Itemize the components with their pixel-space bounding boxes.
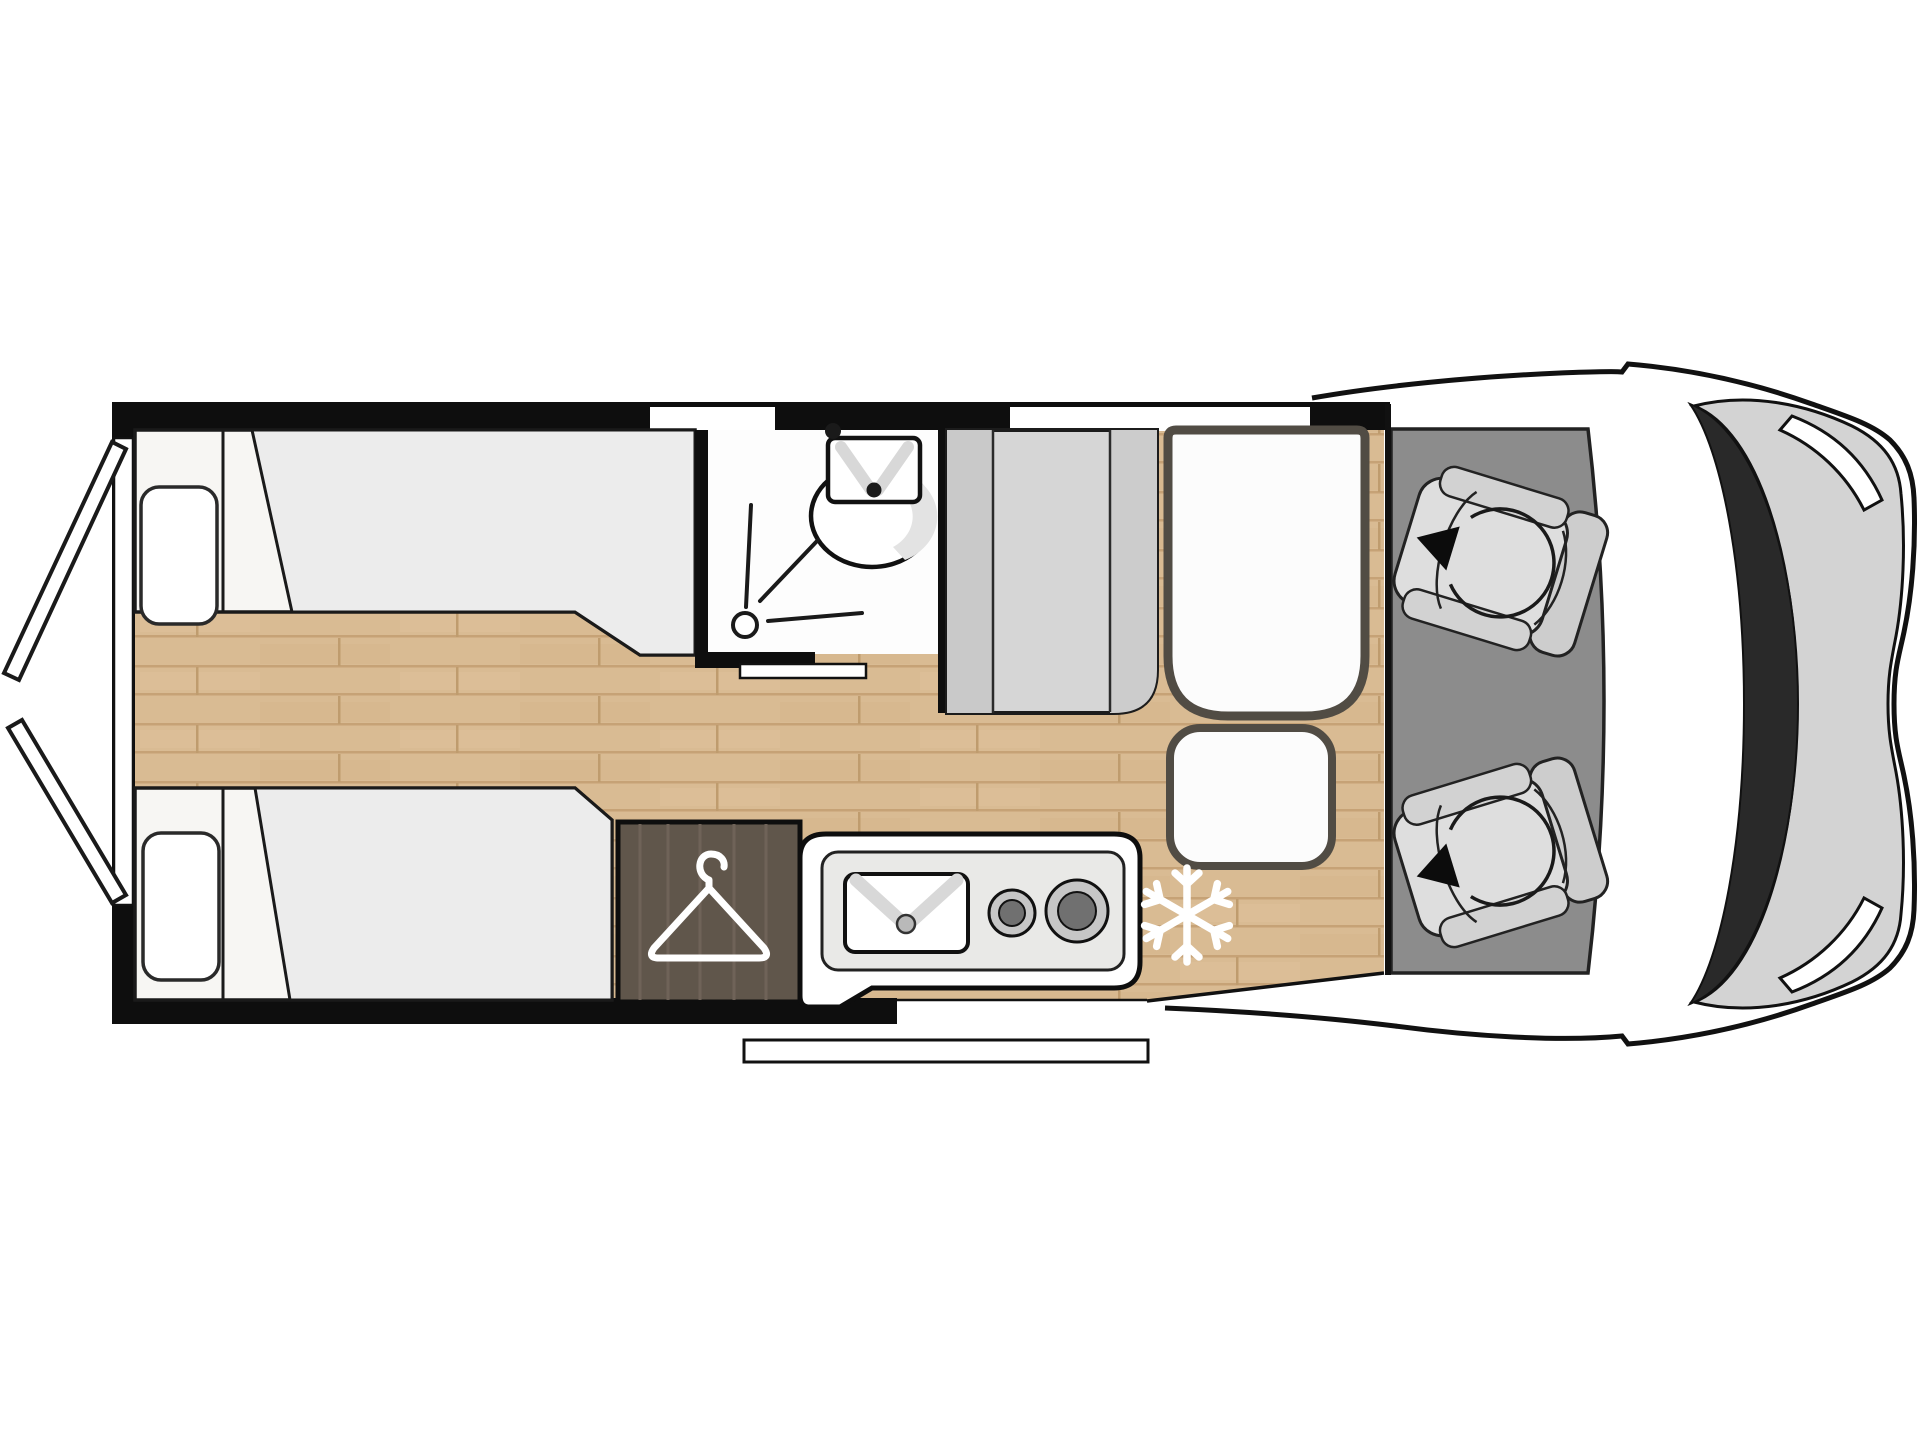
cabinet-unit: [947, 430, 1157, 713]
dinette-seat: [1170, 728, 1332, 866]
rear-door-leaf: [4, 442, 126, 680]
pillow: [143, 833, 219, 980]
wardrobe: [618, 822, 800, 1002]
pillow: [141, 487, 217, 624]
entry-step: [744, 1040, 1148, 1062]
dinette-bench: [1168, 430, 1365, 716]
bed-bottom: [135, 788, 612, 1000]
bathroom-sliding-door: [740, 664, 866, 678]
campervan-floor-plan: [0, 0, 1920, 1440]
hob-burner-icon: [1046, 880, 1108, 942]
washbasin-icon: [811, 423, 937, 567]
kitchen-sink: [845, 874, 968, 952]
rear-door-leaf: [8, 720, 126, 903]
hob-burner-icon: [989, 890, 1035, 936]
window: [650, 407, 775, 431]
floor-plan-page: [0, 0, 1920, 1440]
kitchen-unit: [800, 834, 1140, 1007]
mattress: [255, 788, 612, 1000]
rear-doors: [4, 438, 133, 905]
